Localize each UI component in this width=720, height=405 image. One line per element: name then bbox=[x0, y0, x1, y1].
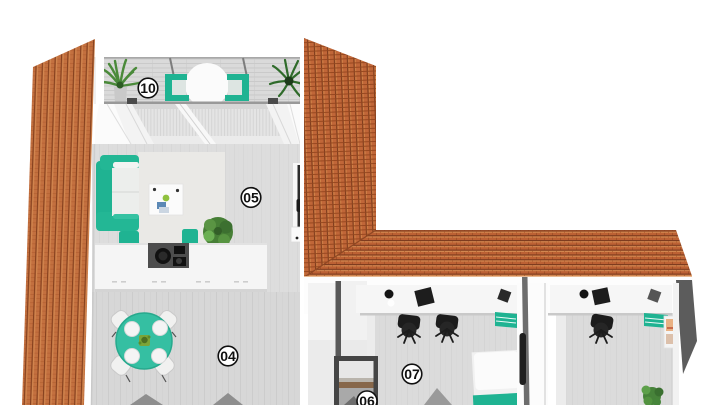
svg-text:07: 07 bbox=[404, 366, 420, 382]
svg-text:04: 04 bbox=[220, 348, 236, 364]
svg-text:06: 06 bbox=[359, 393, 375, 405]
svg-text:10: 10 bbox=[140, 80, 156, 96]
svg-text:05: 05 bbox=[243, 190, 259, 206]
